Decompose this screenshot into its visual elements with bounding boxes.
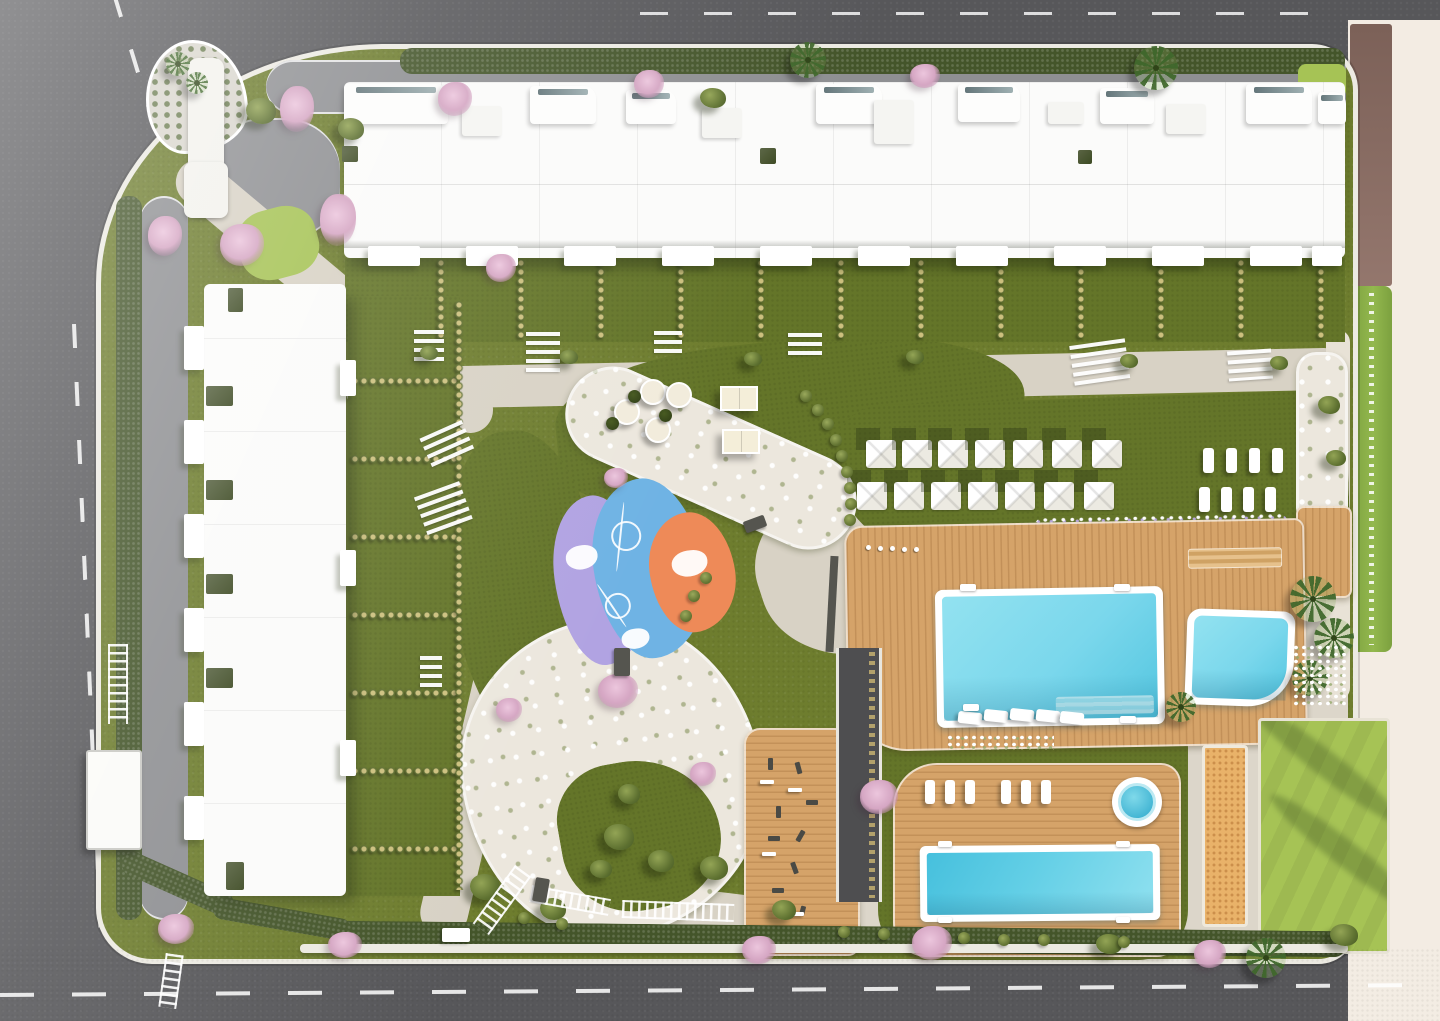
umbrella	[1092, 440, 1122, 468]
furniture-vegetation-layer	[0, 0, 1440, 1021]
roof-module	[1100, 88, 1154, 124]
umbrella	[968, 482, 998, 510]
edge-shrub	[845, 498, 857, 510]
west-terrace-box	[340, 550, 356, 586]
tree	[700, 856, 728, 880]
roof-module	[530, 86, 596, 124]
blossom-tree	[604, 468, 628, 488]
blossom-tree	[496, 698, 522, 722]
edge-shrub	[830, 434, 842, 446]
edge-shrub	[688, 590, 700, 602]
sun-lounger	[1226, 448, 1237, 473]
site-plan-render	[0, 0, 1440, 1021]
roof-patch	[206, 480, 233, 500]
gym-equipment	[768, 836, 780, 841]
tree	[560, 350, 578, 364]
sun-lounger	[1243, 487, 1254, 512]
blossom-tree	[320, 194, 356, 246]
white-flower-bed	[946, 734, 1054, 750]
edge-shrub	[518, 912, 530, 924]
pool-ladder	[1120, 716, 1136, 723]
sun-lounger	[1249, 448, 1260, 473]
blossom-tree	[280, 86, 314, 132]
blossom-tree	[742, 936, 776, 964]
roof-module	[1318, 92, 1346, 124]
shower-post	[878, 546, 883, 551]
roof-patch	[206, 386, 233, 406]
west-terrace-box	[184, 608, 204, 652]
sun-lounger	[1265, 487, 1276, 512]
pool-ladder	[960, 584, 976, 591]
sun-lounger	[1221, 487, 1232, 512]
tree	[604, 824, 634, 850]
deck-lounger	[983, 709, 1008, 723]
shower-post	[890, 546, 895, 551]
roof-module-low	[1048, 102, 1084, 124]
west-terrace-box	[340, 360, 356, 396]
terrace-box	[1250, 246, 1302, 266]
tree	[420, 346, 438, 360]
shrub-ball	[606, 417, 619, 430]
terrace-box	[858, 246, 910, 266]
bench	[743, 515, 768, 534]
umbrella	[931, 482, 961, 510]
bench	[614, 648, 630, 676]
umbrella	[1044, 482, 1074, 510]
shrub-ball	[628, 390, 641, 403]
trellis-flat	[622, 900, 735, 922]
roof-module-low	[462, 106, 502, 136]
roof-patch	[206, 668, 233, 688]
roof-patch	[342, 146, 358, 162]
edge-shrub	[700, 572, 712, 584]
palm-tree	[1166, 692, 1196, 722]
white-flower-bed	[1292, 644, 1346, 706]
roof-patch	[206, 574, 233, 594]
gym-bench	[788, 788, 802, 792]
edge-shrub	[878, 928, 890, 940]
terrace-box	[956, 246, 1008, 266]
west-terrace-box	[184, 326, 204, 370]
blossom-tree	[148, 216, 182, 256]
tree	[772, 900, 796, 920]
gym-equipment	[790, 862, 799, 875]
umbrella	[902, 440, 932, 468]
umbrella	[857, 482, 887, 510]
blossom-tree	[158, 914, 194, 944]
tree	[1326, 450, 1346, 466]
pool-ladder	[1116, 841, 1130, 847]
edge-shrub	[800, 390, 812, 402]
pool-ladder	[938, 917, 952, 923]
pool-ladder	[1116, 917, 1130, 923]
shower-post	[902, 547, 907, 552]
pool-ladder	[963, 704, 979, 711]
roof-patch	[228, 288, 243, 312]
edge-shrub	[556, 918, 568, 930]
edge-shrub	[844, 514, 856, 526]
edge-shrub	[1038, 934, 1050, 946]
tree	[1318, 396, 1340, 414]
roof-module-low	[1166, 104, 1206, 134]
gym-bench	[762, 852, 776, 856]
round-table	[640, 379, 666, 405]
gym-equipment	[772, 888, 784, 893]
edge-shrub	[998, 934, 1010, 946]
shrub-ball	[659, 409, 672, 422]
tree	[744, 352, 762, 366]
blossom-tree	[860, 780, 898, 814]
roof-patch	[760, 148, 776, 164]
terrace-box	[1054, 246, 1106, 266]
gym-equipment	[795, 762, 803, 775]
west-terrace-box	[184, 514, 204, 558]
umbrella	[938, 440, 968, 468]
gym-equipment	[776, 806, 781, 818]
sun-lounger	[1021, 780, 1031, 804]
tree	[1330, 924, 1358, 946]
roof-module-low	[702, 108, 742, 138]
trellis	[158, 953, 183, 1009]
sun-lounger	[965, 780, 975, 804]
terrace-box	[1152, 246, 1204, 266]
west-terrace-box	[184, 796, 204, 840]
edge-shrub	[1118, 936, 1130, 948]
palm-tree	[166, 52, 190, 76]
roof-module	[1246, 84, 1312, 124]
tree	[590, 860, 612, 878]
sun-lounger	[925, 780, 935, 804]
roof-module	[344, 84, 448, 124]
trellis	[108, 644, 128, 724]
tree	[648, 850, 674, 872]
deck-lounger	[1059, 711, 1084, 725]
edge-shrub	[838, 926, 850, 938]
blossom-tree	[486, 254, 516, 282]
tree	[338, 118, 364, 140]
pool-ladder	[1114, 584, 1130, 591]
gym-equipment	[806, 800, 818, 805]
palm-tree	[1134, 46, 1178, 90]
roof-patch	[226, 862, 244, 890]
palm-tree	[1246, 938, 1286, 978]
blossom-tree	[598, 674, 638, 708]
edge-shrub	[680, 610, 692, 622]
west-terrace-box	[184, 702, 204, 746]
palm-tree	[1290, 576, 1336, 622]
edge-shrub	[841, 466, 853, 478]
blossom-tree	[912, 926, 952, 960]
umbrella	[975, 440, 1005, 468]
palm-tree	[790, 42, 826, 78]
tree	[906, 350, 924, 364]
terrace-box	[564, 246, 616, 266]
white-pad	[442, 928, 470, 942]
sun-lounger	[1041, 780, 1051, 804]
sun-lounger	[1001, 780, 1011, 804]
roof-module-low	[874, 100, 914, 144]
round-table	[666, 382, 692, 408]
gym-equipment	[795, 830, 805, 843]
terrace-box	[368, 246, 420, 266]
sun-lounger	[1272, 448, 1283, 473]
umbrella	[1005, 482, 1035, 510]
blossom-tree	[1194, 940, 1226, 968]
deck-lounger	[1035, 709, 1060, 723]
deck-lounger	[1009, 708, 1034, 722]
terrace-box	[662, 246, 714, 266]
palm-tree	[186, 72, 208, 94]
umbrella	[894, 482, 924, 510]
roof-patch	[1078, 150, 1092, 164]
tree	[246, 98, 276, 124]
umbrella	[866, 440, 896, 468]
umbrella	[1052, 440, 1082, 468]
terrace-box	[760, 246, 812, 266]
umbrella	[1013, 440, 1043, 468]
edge-shrub	[822, 418, 834, 430]
west-terrace-box	[184, 420, 204, 464]
edge-shrub	[836, 450, 848, 462]
blossom-tree	[220, 224, 264, 266]
edge-shrub	[812, 404, 824, 416]
umbrella	[1084, 482, 1114, 510]
shower-post	[914, 547, 919, 552]
west-terrace-box	[340, 740, 356, 776]
tree	[1270, 356, 1288, 370]
gym-bench	[760, 780, 774, 784]
tree	[1120, 354, 1138, 368]
roof-module	[816, 84, 882, 124]
tree	[700, 88, 726, 108]
sun-lounger	[945, 780, 955, 804]
pool-ladder	[938, 841, 952, 847]
sun-lounger	[1199, 487, 1210, 512]
deck-lounger	[957, 711, 982, 725]
shower-post	[866, 545, 871, 550]
terrace-box	[1312, 246, 1342, 266]
blossom-tree	[328, 932, 362, 958]
edge-shrub	[844, 482, 856, 494]
tree	[618, 784, 640, 804]
sun-lounger	[1203, 448, 1214, 473]
pergola	[720, 386, 758, 411]
blossom-tree	[690, 762, 716, 786]
roof-module	[958, 84, 1020, 122]
gym-equipment	[768, 758, 773, 770]
pergola	[722, 429, 760, 454]
edge-shrub	[958, 932, 970, 944]
blossom-tree	[910, 64, 940, 88]
